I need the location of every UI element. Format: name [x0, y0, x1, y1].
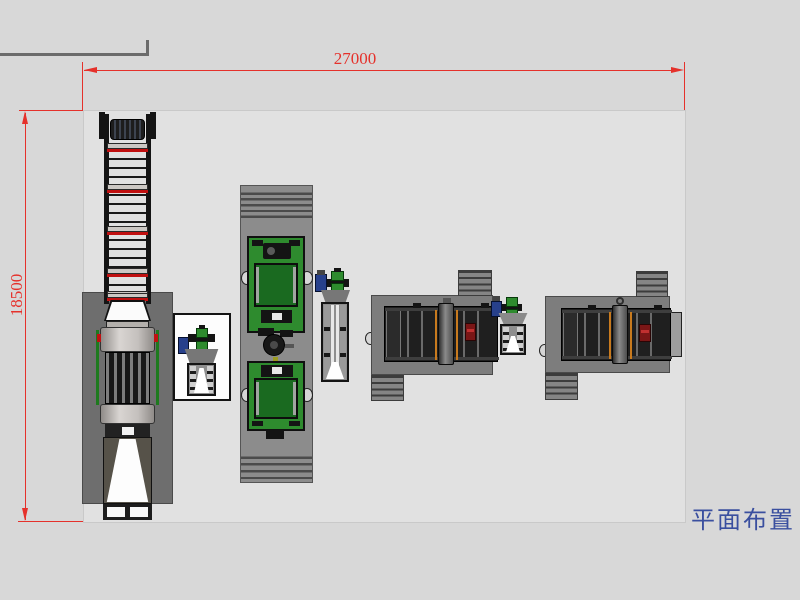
pump-bracket — [280, 330, 293, 337]
mixer1-belt — [254, 263, 298, 307]
feed-truck — [82, 292, 173, 524]
feeder-hopper-top — [184, 349, 219, 363]
feeder-hopper-body — [187, 363, 216, 396]
dim-left-label: 18500 — [8, 257, 26, 333]
elevator-red-bar — [107, 149, 148, 152]
packing1-stairs-top — [458, 270, 492, 296]
frame-corner-horizontal — [0, 53, 149, 56]
screw-elevator — [313, 268, 353, 384]
truck-cab-roof — [106, 302, 149, 320]
mixer2-drive — [266, 430, 284, 439]
dim-left-ext-bottom — [18, 521, 83, 522]
screw-motor-blue — [315, 274, 327, 292]
dim-top-line — [84, 70, 677, 71]
feeder-valve-green — [196, 341, 208, 350]
machine-cylinder-cap — [443, 298, 451, 303]
platform-grating-bottom — [241, 452, 312, 481]
plan-layout-drawing: 27000 18500 — [0, 0, 800, 600]
dim-top-arrow-right-icon — [671, 67, 684, 73]
machine-red-knob — [639, 324, 651, 342]
screw-motor-cap — [317, 270, 325, 275]
screw-valve-green — [331, 271, 344, 281]
elevator-head-drum — [110, 119, 145, 140]
pump-hub — [270, 341, 278, 349]
machine-red-knob-stripe — [467, 329, 474, 332]
truck-bumper-plate — [107, 507, 125, 517]
machine-top-tab — [588, 305, 596, 310]
truck-tank-front — [100, 327, 155, 352]
mixer-1 — [247, 236, 305, 333]
belt-side-strip — [293, 267, 296, 303]
machine-divider — [584, 313, 586, 358]
machine-divider — [598, 313, 600, 358]
packing1-hopper-motor-cap — [493, 296, 500, 301]
packing1-stairs-bottom — [371, 375, 404, 401]
machine-orange-line — [456, 310, 458, 360]
packing1-machine — [384, 306, 498, 362]
elevator-red-bar — [107, 190, 148, 193]
truck-bumper-plate — [130, 507, 148, 517]
machine-top-tab — [413, 303, 421, 308]
dim-left-arrow-down-icon — [22, 508, 28, 521]
packing2-stairs-bottom — [545, 373, 578, 400]
platform-grating-top — [241, 189, 312, 221]
mixer1-motor-hub — [267, 247, 275, 255]
truck-grid-section — [105, 352, 150, 404]
machine-orange-line — [609, 312, 611, 359]
packing1-hopper-valve — [506, 297, 518, 307]
elevator-red-bar — [107, 274, 148, 277]
feeder-valve-green — [196, 328, 208, 338]
mixer2-corner-tab — [289, 421, 300, 426]
machine-red-knob-stripe — [641, 330, 649, 333]
machine-top-tab — [481, 303, 489, 308]
mixer2-belt — [254, 378, 298, 419]
dim-top-ext-right — [684, 62, 685, 110]
machine-end-cap — [563, 312, 578, 357]
elevator-rungs — [108, 142, 148, 302]
mixer-pump-cluster — [256, 328, 298, 364]
machine-cylinder — [438, 303, 454, 365]
screw-valve-cap — [334, 268, 341, 272]
feeder-cabinet — [173, 313, 231, 401]
frame-corner-vertical — [146, 40, 149, 56]
dim-left-line — [25, 113, 26, 520]
truck-clamp-right — [154, 334, 158, 342]
machine-divider — [636, 313, 638, 358]
elevator-red-bar — [107, 232, 148, 235]
machine-divider — [477, 311, 479, 359]
pump-arm — [285, 344, 294, 348]
dim-top-label: 27000 — [310, 50, 400, 67]
packing1-hopper-body — [500, 324, 526, 355]
mixer2-corner-tab — [252, 421, 263, 426]
mixer2-inlet-window — [272, 367, 282, 374]
truck-frame-window — [122, 427, 134, 435]
truck-clamp-left — [97, 334, 101, 342]
screw-rungs-right — [340, 305, 346, 379]
packing2-stairs-top — [636, 271, 668, 297]
belt-side-strip — [293, 382, 296, 415]
machine-orange-line — [435, 310, 437, 360]
packing2-machine — [561, 308, 671, 361]
drawing-caption: 平面布置 — [691, 500, 796, 535]
screw-rungs-left — [324, 305, 330, 379]
machine-orange-line — [630, 312, 632, 359]
machine-end-cap — [386, 310, 401, 358]
dim-top-ext-left — [82, 62, 83, 110]
truck-tank-rear — [100, 404, 155, 424]
dim-left-arrow-up-icon — [22, 111, 28, 124]
machine-divider — [421, 311, 423, 359]
elevator-head-post-left — [99, 112, 105, 139]
dim-left-ext-top — [19, 110, 83, 111]
elevator-head-post-right — [150, 112, 156, 139]
belt-side-strip — [256, 267, 259, 303]
bucket-elevator — [96, 110, 160, 306]
machine-cylinder — [612, 305, 628, 364]
mixer1-outlet-window — [272, 313, 282, 320]
belt-side-strip — [256, 382, 259, 415]
mixer1-corner-tab — [252, 240, 263, 246]
machine-red-knob — [465, 323, 476, 341]
dim-top-arrow-left-icon — [84, 67, 97, 73]
screw-body — [321, 302, 349, 382]
machine-top-tab — [654, 305, 662, 310]
machine-hook-ring — [616, 297, 624, 305]
feeder-valve-cap — [199, 325, 205, 329]
machine-divider — [407, 311, 409, 359]
mixer-2 — [247, 361, 305, 431]
